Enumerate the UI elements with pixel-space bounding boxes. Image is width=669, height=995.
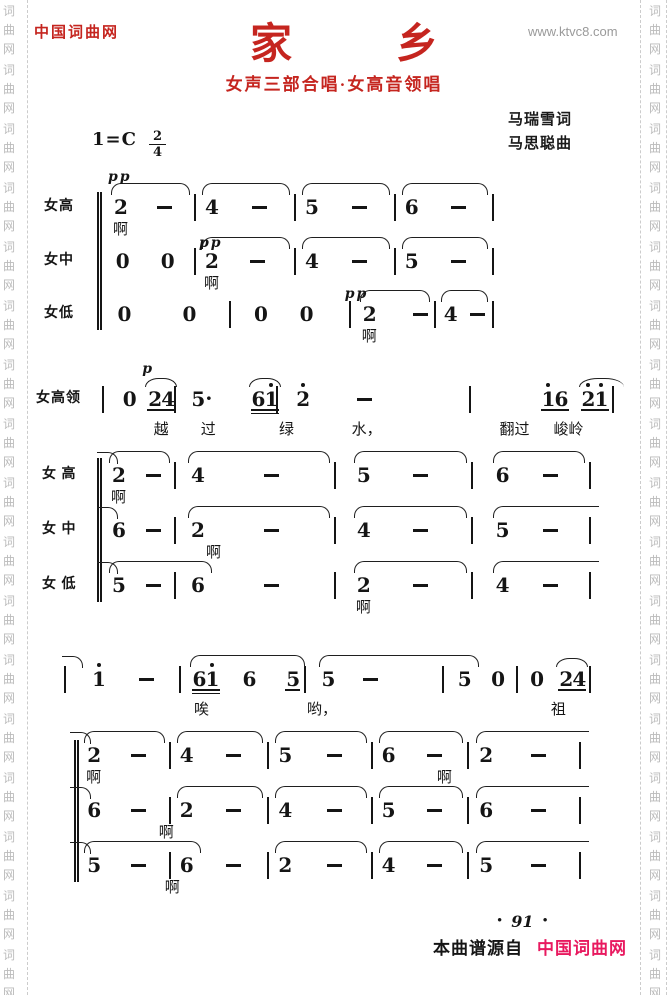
sustain-dash bbox=[327, 864, 342, 867]
note-group: 21 bbox=[582, 388, 608, 410]
tie-arc bbox=[62, 656, 83, 668]
barline bbox=[469, 386, 471, 413]
watermark-char: 网 bbox=[2, 397, 16, 410]
note: 2 bbox=[582, 388, 595, 410]
note-group bbox=[410, 574, 431, 596]
sustain-dash bbox=[531, 809, 546, 812]
watermark-char: 曲 bbox=[648, 496, 662, 509]
watermark-char: 词 bbox=[648, 772, 662, 785]
watermark-char: 词 bbox=[648, 123, 662, 136]
slur-arc bbox=[441, 290, 488, 302]
watermark-char: 网 bbox=[648, 220, 662, 233]
note-group: 5 bbox=[496, 519, 509, 541]
note-group: 2 bbox=[87, 744, 100, 766]
slur-arc bbox=[379, 731, 463, 743]
barline bbox=[349, 301, 351, 328]
note-group: 2 bbox=[296, 388, 309, 410]
watermark-char: 词 bbox=[2, 713, 16, 726]
note: 6 bbox=[193, 668, 206, 690]
barline bbox=[589, 666, 591, 693]
slur-arc bbox=[493, 561, 599, 573]
lyric: 翻过 bbox=[499, 422, 529, 439]
barline bbox=[371, 742, 373, 769]
augmentation-dot: · bbox=[204, 388, 213, 408]
sustain-dash bbox=[252, 206, 267, 209]
note: 2 bbox=[296, 388, 309, 410]
sustain-dash bbox=[146, 584, 161, 587]
sustain-dash bbox=[451, 260, 466, 263]
note-group bbox=[540, 519, 561, 541]
note: 1 bbox=[206, 668, 219, 690]
dynamic-mark: p bbox=[142, 362, 154, 376]
lyric: 绿 bbox=[279, 422, 294, 439]
lyric: 啊 bbox=[437, 770, 452, 787]
note-group: 4 bbox=[382, 854, 395, 876]
watermark-char: 词 bbox=[2, 359, 16, 372]
sustain-dash bbox=[543, 474, 558, 477]
note-group: 61 bbox=[252, 388, 278, 410]
note: 2 bbox=[479, 744, 492, 766]
barline bbox=[179, 666, 181, 693]
sustain-dash bbox=[226, 754, 241, 757]
barline bbox=[267, 797, 269, 824]
watermark-char: 曲 bbox=[648, 437, 662, 450]
system-barline bbox=[97, 192, 99, 330]
watermark-char: 词 bbox=[2, 123, 16, 136]
system-barline bbox=[100, 192, 102, 330]
note-group: 6 bbox=[191, 574, 204, 596]
system-barline bbox=[100, 458, 102, 602]
dynamic-mark: pp bbox=[345, 287, 369, 301]
barline bbox=[516, 666, 518, 693]
watermark-char: 曲 bbox=[648, 909, 662, 922]
note-group: 5 bbox=[357, 464, 370, 486]
slur-arc bbox=[84, 841, 201, 853]
note-group: 24 bbox=[148, 388, 174, 410]
watermark-char: 网 bbox=[648, 397, 662, 410]
note-group bbox=[128, 744, 149, 766]
lyric: 啊 bbox=[159, 825, 174, 842]
watermark-char: 曲 bbox=[648, 260, 662, 273]
page-number: • 91 • bbox=[497, 913, 548, 930]
watermark-char: 网 bbox=[648, 102, 662, 115]
barline bbox=[102, 386, 104, 413]
note-group: 5 bbox=[305, 196, 318, 218]
note-group bbox=[136, 668, 157, 690]
sustain-dash bbox=[427, 754, 442, 757]
watermark-char: 网 bbox=[2, 692, 16, 705]
sustain-dash bbox=[531, 754, 546, 757]
beam-line bbox=[251, 409, 279, 411]
note-group: 2 bbox=[114, 196, 127, 218]
watermark-char: 曲 bbox=[648, 614, 662, 627]
note-group: 4 bbox=[180, 744, 193, 766]
note-group bbox=[143, 464, 164, 486]
barline bbox=[174, 462, 176, 489]
watermark-char: 词 bbox=[2, 831, 16, 844]
note: 5 bbox=[278, 744, 291, 766]
note: 2 bbox=[278, 854, 291, 876]
note: 0 bbox=[123, 388, 136, 410]
note: 1 bbox=[92, 668, 105, 690]
beam-line bbox=[541, 409, 569, 411]
sustain-dash bbox=[131, 864, 146, 867]
sustain-dash bbox=[250, 260, 265, 263]
barline bbox=[579, 852, 581, 879]
barline bbox=[267, 742, 269, 769]
watermark-char: 曲 bbox=[2, 83, 16, 96]
note-group bbox=[349, 250, 370, 272]
lyric: 啊 bbox=[204, 276, 219, 293]
note: 5 bbox=[458, 668, 471, 690]
watermark-char: 曲 bbox=[2, 437, 16, 450]
watermark-char: 网 bbox=[648, 869, 662, 882]
note: 5 bbox=[87, 854, 100, 876]
barline bbox=[467, 852, 469, 879]
slur-arc bbox=[275, 786, 367, 798]
note-group: 6 bbox=[382, 744, 395, 766]
note: 5 bbox=[305, 196, 318, 218]
slur-arc bbox=[556, 658, 588, 667]
note-group bbox=[467, 303, 488, 325]
note-group: 1 bbox=[92, 668, 105, 690]
note-group: 5 bbox=[112, 574, 125, 596]
note-group bbox=[540, 574, 561, 596]
note-group: 6 bbox=[479, 799, 492, 821]
slur-arc bbox=[354, 561, 467, 573]
voice-label: 女高 bbox=[44, 199, 74, 215]
watermark-char: 词 bbox=[648, 64, 662, 77]
note: 6 bbox=[87, 799, 100, 821]
watermark-char: 词 bbox=[648, 654, 662, 667]
note-group bbox=[349, 196, 370, 218]
note-group: 16 bbox=[542, 388, 568, 410]
barline bbox=[442, 666, 444, 693]
watermark-char: 网 bbox=[2, 810, 16, 823]
watermark-char: 词 bbox=[2, 654, 16, 667]
note-group bbox=[223, 744, 244, 766]
note-group: 2 bbox=[191, 519, 204, 541]
note: 0 bbox=[254, 303, 267, 325]
barline bbox=[467, 797, 469, 824]
note: 0 bbox=[116, 250, 129, 272]
dynamic-mark: pp bbox=[199, 236, 223, 250]
beam-line bbox=[192, 689, 220, 691]
barline bbox=[467, 742, 469, 769]
barline bbox=[471, 572, 473, 599]
watermark-char: 网 bbox=[2, 338, 16, 351]
watermark-char: 网 bbox=[648, 633, 662, 646]
slur-arc bbox=[579, 378, 624, 387]
watermark-char: 网 bbox=[648, 456, 662, 469]
tie-arc bbox=[97, 507, 118, 519]
note: 5 bbox=[322, 668, 335, 690]
watermark-char: 网 bbox=[2, 928, 16, 941]
note-group bbox=[154, 196, 175, 218]
note-group: 0 bbox=[116, 250, 129, 272]
note: 0 bbox=[491, 668, 504, 690]
sustain-dash bbox=[264, 529, 279, 532]
watermark-char: 词 bbox=[2, 477, 16, 490]
slur-arc bbox=[177, 786, 263, 798]
note: 2 bbox=[148, 388, 161, 410]
barline bbox=[174, 386, 176, 413]
note-group: 0 bbox=[300, 303, 313, 325]
sustain-dash bbox=[264, 474, 279, 477]
beam-line bbox=[147, 409, 175, 411]
sustain-dash bbox=[363, 678, 378, 681]
barline bbox=[492, 248, 494, 275]
slur-arc bbox=[302, 183, 390, 195]
beam-line bbox=[581, 409, 609, 411]
watermark-char: 曲 bbox=[2, 201, 16, 214]
lyric: 哟， bbox=[307, 702, 337, 719]
slur-arc bbox=[145, 378, 177, 387]
barline bbox=[276, 386, 278, 413]
slur-arc bbox=[275, 841, 367, 853]
barline bbox=[394, 194, 396, 221]
system-barline bbox=[97, 458, 99, 602]
barline bbox=[169, 852, 171, 879]
barline bbox=[589, 572, 591, 599]
sustain-dash bbox=[543, 584, 558, 587]
watermark-char: 词 bbox=[648, 182, 662, 195]
watermark-char: 曲 bbox=[2, 142, 16, 155]
watermark-char: 网 bbox=[2, 869, 16, 882]
note: 4 bbox=[305, 250, 318, 272]
note-group: 0 bbox=[118, 303, 131, 325]
watermark-char: 网 bbox=[648, 43, 662, 56]
note-group: 5 bbox=[382, 799, 395, 821]
note-group: 5 bbox=[458, 668, 471, 690]
note-group: 2 bbox=[363, 303, 376, 325]
sustain-dash bbox=[451, 206, 466, 209]
barline bbox=[371, 797, 373, 824]
watermark-char: 曲 bbox=[648, 673, 662, 686]
note-group bbox=[247, 250, 268, 272]
note-group bbox=[261, 464, 282, 486]
note: 2 bbox=[87, 744, 100, 766]
note: 2 bbox=[357, 574, 370, 596]
note-group bbox=[528, 799, 549, 821]
note-group bbox=[324, 854, 345, 876]
voice-label: 女高领 bbox=[36, 391, 81, 407]
watermark-char: 词 bbox=[648, 713, 662, 726]
note: 0 bbox=[530, 668, 543, 690]
lyric: 啊 bbox=[113, 222, 128, 239]
note-group bbox=[360, 668, 381, 690]
page-number-bullet-left: • bbox=[497, 913, 502, 930]
watermark-char: 网 bbox=[2, 102, 16, 115]
page-number-bullet-right: • bbox=[543, 913, 548, 930]
barline bbox=[334, 572, 336, 599]
note: 2 bbox=[180, 799, 193, 821]
note: 4 bbox=[382, 854, 395, 876]
watermark-char: 词 bbox=[2, 949, 16, 962]
sustain-dash bbox=[352, 260, 367, 263]
beam-line bbox=[558, 689, 586, 691]
note-group: 4 bbox=[278, 799, 291, 821]
watermark-char: 网 bbox=[648, 928, 662, 941]
watermark-char: 词 bbox=[648, 890, 662, 903]
note-group: 2 bbox=[205, 250, 218, 272]
watermark-char: 曲 bbox=[2, 555, 16, 568]
watermark-char: 词 bbox=[2, 536, 16, 549]
watermark-char: 网 bbox=[2, 279, 16, 292]
note: 6 bbox=[191, 574, 204, 596]
slur-arc bbox=[109, 561, 212, 573]
note: 6 bbox=[496, 464, 509, 486]
footer-prefix: 本曲谱源自 bbox=[433, 934, 523, 959]
watermark-char: 网 bbox=[648, 338, 662, 351]
watermark-char: 网 bbox=[648, 515, 662, 528]
note: 0 bbox=[300, 303, 313, 325]
barline bbox=[169, 797, 171, 824]
watermark-char: 网 bbox=[2, 987, 16, 995]
sustain-dash bbox=[131, 809, 146, 812]
barline bbox=[612, 386, 614, 413]
slur-arc bbox=[177, 731, 263, 743]
note-group: 2 bbox=[278, 854, 291, 876]
note: 2 bbox=[112, 464, 125, 486]
note: 1 bbox=[542, 388, 555, 410]
note-group bbox=[143, 519, 164, 541]
barline bbox=[334, 462, 336, 489]
watermark-char: 网 bbox=[648, 692, 662, 705]
sustain-dash bbox=[327, 809, 342, 812]
note-group: 4 bbox=[496, 574, 509, 596]
barline bbox=[471, 462, 473, 489]
note-group bbox=[410, 519, 431, 541]
sustain-dash bbox=[131, 754, 146, 757]
note-group bbox=[528, 744, 549, 766]
watermark-char: 网 bbox=[648, 751, 662, 764]
slur-arc bbox=[354, 451, 467, 463]
watermark-char: 曲 bbox=[648, 378, 662, 391]
sustain-dash bbox=[413, 584, 428, 587]
lyric: 啊 bbox=[165, 880, 180, 897]
note: 0 bbox=[118, 303, 131, 325]
sustain-dash bbox=[413, 529, 428, 532]
note: 4 bbox=[205, 196, 218, 218]
watermark-char: 词 bbox=[2, 890, 16, 903]
watermark-char: 曲 bbox=[648, 201, 662, 214]
tie-arc bbox=[70, 787, 91, 799]
watermark-char: 词 bbox=[648, 477, 662, 490]
note: 6 bbox=[252, 388, 265, 410]
watermark-char: 词 bbox=[2, 418, 16, 431]
note-group: 0 bbox=[491, 668, 504, 690]
sustain-dash bbox=[327, 754, 342, 757]
voice-label: 女 中 bbox=[42, 522, 77, 538]
watermark-char: 曲 bbox=[648, 83, 662, 96]
sustain-dash bbox=[146, 529, 161, 532]
watermark-char: 曲 bbox=[2, 378, 16, 391]
sustain-dash bbox=[264, 584, 279, 587]
sustain-dash bbox=[157, 206, 172, 209]
slur-arc bbox=[275, 731, 367, 743]
note: 4 bbox=[191, 464, 204, 486]
watermark-char: 词 bbox=[648, 241, 662, 254]
barline bbox=[294, 248, 296, 275]
slur-arc bbox=[476, 786, 589, 798]
note: 6 bbox=[180, 854, 193, 876]
lyric: 祖 bbox=[551, 702, 566, 719]
watermark-char: 网 bbox=[2, 43, 16, 56]
barline bbox=[471, 517, 473, 544]
watermark-char: 词 bbox=[648, 595, 662, 608]
voice-label: 女 高 bbox=[42, 467, 77, 483]
watermark-char: 网 bbox=[2, 220, 16, 233]
barline bbox=[194, 194, 196, 221]
note-group: 4 bbox=[357, 519, 370, 541]
watermark-char: 词 bbox=[2, 772, 16, 785]
barline bbox=[589, 462, 591, 489]
note-group: 2 bbox=[479, 744, 492, 766]
note-group bbox=[223, 799, 244, 821]
note-group bbox=[324, 799, 345, 821]
watermark-char: 曲 bbox=[648, 142, 662, 155]
note: 4 bbox=[180, 744, 193, 766]
lyric: 唉 bbox=[194, 702, 209, 719]
note: 5 bbox=[286, 668, 299, 690]
note-group bbox=[223, 854, 244, 876]
note: 4 bbox=[444, 303, 457, 325]
watermark-char: 曲 bbox=[648, 732, 662, 745]
watermark-char: 曲 bbox=[2, 909, 16, 922]
watermark-char: 词 bbox=[648, 536, 662, 549]
slur-arc bbox=[202, 183, 290, 195]
note: 2 bbox=[114, 196, 127, 218]
watermark-char: 曲 bbox=[2, 496, 16, 509]
watermark-char: 曲 bbox=[2, 850, 16, 863]
note: 4 bbox=[278, 799, 291, 821]
note-group: 2 bbox=[112, 464, 125, 486]
sustain-dash bbox=[543, 529, 558, 532]
note-group bbox=[424, 854, 445, 876]
dynamic-mark: pp bbox=[108, 170, 132, 184]
slur-arc bbox=[360, 290, 430, 302]
system-barline bbox=[74, 740, 76, 882]
sustain-dash bbox=[531, 864, 546, 867]
note-group bbox=[410, 464, 431, 486]
lyric: 啊 bbox=[86, 770, 101, 787]
note-group bbox=[410, 303, 431, 325]
barline bbox=[334, 517, 336, 544]
note: 1 bbox=[595, 388, 608, 410]
note: 6 bbox=[382, 744, 395, 766]
note-group: 4 bbox=[205, 196, 218, 218]
lyric: 过 bbox=[201, 422, 216, 439]
barline bbox=[304, 666, 306, 693]
note: 4 bbox=[572, 668, 585, 690]
lyric: 水， bbox=[352, 422, 382, 439]
slur-arc bbox=[188, 506, 330, 518]
note-group: 4 bbox=[191, 464, 204, 486]
note: 2 bbox=[363, 303, 376, 325]
watermark-char: 曲 bbox=[2, 24, 16, 37]
watermark-char: 曲 bbox=[648, 24, 662, 37]
note: 4 bbox=[496, 574, 509, 596]
note-group: 5 bbox=[322, 668, 335, 690]
watermark-char: 网 bbox=[2, 161, 16, 174]
watermark-char: 曲 bbox=[648, 791, 662, 804]
note-group: 0 bbox=[183, 303, 196, 325]
note-group bbox=[249, 196, 270, 218]
beam-line bbox=[251, 413, 279, 415]
watermark-char: 词 bbox=[648, 831, 662, 844]
note: 0 bbox=[183, 303, 196, 325]
